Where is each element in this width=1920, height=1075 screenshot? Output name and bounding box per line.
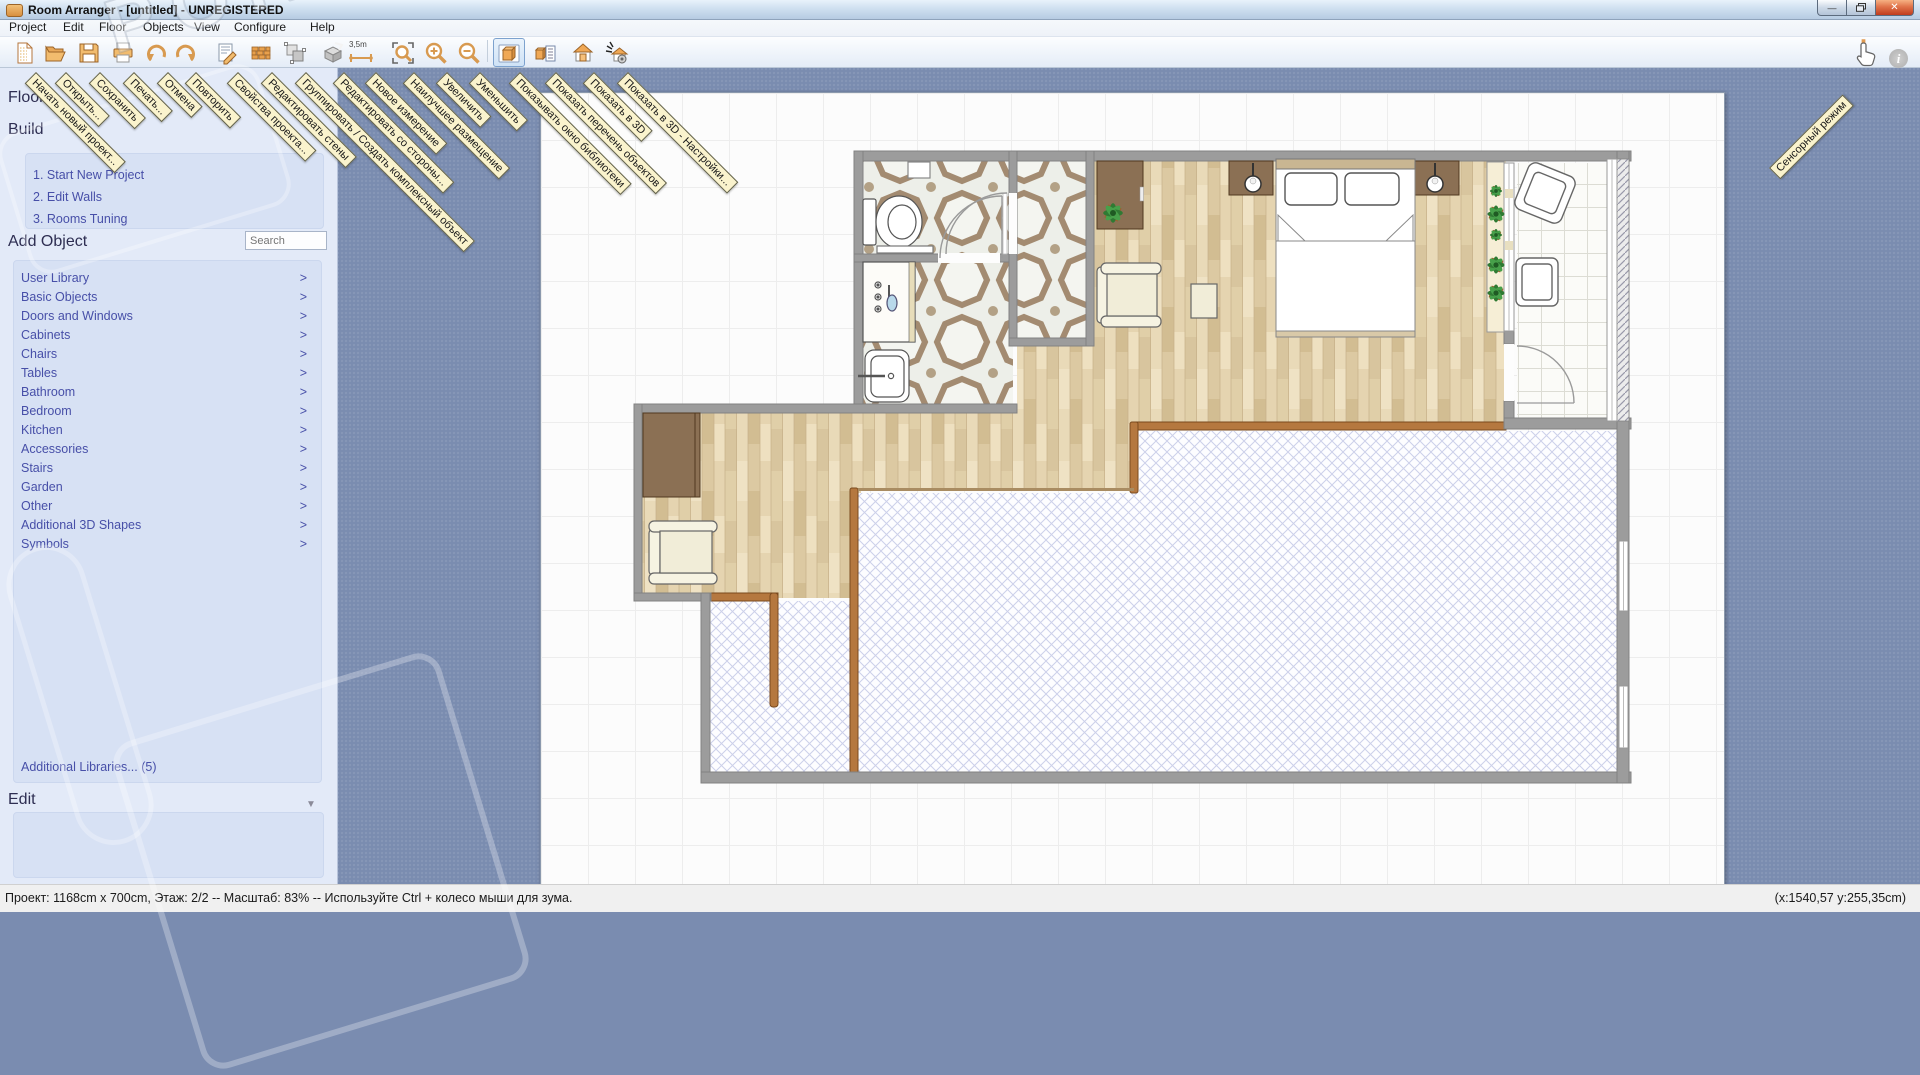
- edit-header: Edit: [8, 791, 36, 809]
- plant[interactable]: [1490, 185, 1502, 197]
- category-chairs[interactable]: Chairs>: [14, 345, 321, 364]
- zoom-in-button[interactable]: [420, 38, 452, 67]
- floorplan-canvas[interactable]: [540, 92, 1725, 885]
- cube-arrow-icon: [321, 41, 345, 65]
- group-objects-icon: [283, 41, 307, 65]
- window[interactable]: [1619, 541, 1628, 611]
- side-table[interactable]: [1191, 284, 1217, 318]
- wall-wing-bottom[interactable]: [634, 593, 711, 601]
- new-document-icon: [13, 41, 37, 65]
- category-tables[interactable]: Tables>: [14, 364, 321, 383]
- menu-bar: Project Edit Floor Objects View Configur…: [0, 19, 1920, 37]
- properties-icon: [215, 41, 239, 65]
- status-bar: Проект: 1168cm x 700cm, Этаж: 2/2 -- Мас…: [0, 884, 1920, 912]
- zoom-out-icon: [457, 41, 481, 65]
- window-controls: — ✕: [1818, 0, 1914, 17]
- show-library-button[interactable]: [493, 38, 525, 67]
- menu-project[interactable]: Project: [6, 19, 49, 36]
- menu-help[interactable]: Help: [307, 19, 338, 36]
- category-stairs[interactable]: Stairs>: [14, 459, 321, 478]
- door-opening: [1009, 193, 1017, 254]
- settings-sparks-icon: [605, 41, 629, 65]
- balcony-chair[interactable]: [1516, 258, 1558, 306]
- category-basic-objects[interactable]: Basic Objects>: [14, 288, 321, 307]
- chevron-right-icon: >: [300, 516, 307, 535]
- close-icon: ✕: [1890, 2, 1898, 13]
- wing-cabinet[interactable]: [643, 413, 700, 497]
- chevron-right-icon: >: [300, 364, 307, 383]
- info-icon[interactable]: i: [1889, 49, 1908, 68]
- corridor-tile-floor: [1017, 159, 1091, 338]
- window[interactable]: [1619, 686, 1628, 748]
- undo-icon: [145, 41, 169, 65]
- category-user-library[interactable]: User Library>: [14, 269, 321, 288]
- wall-corridor-right[interactable]: [1086, 151, 1094, 346]
- wing-armchair[interactable]: [649, 521, 717, 584]
- wall-bottom[interactable]: [701, 772, 1631, 783]
- wall-brown-vertical-long[interactable]: [850, 488, 858, 778]
- plant[interactable]: [1488, 206, 1505, 223]
- wall-balcony-stub-top[interactable]: [1504, 331, 1514, 344]
- category-kitchen[interactable]: Kitchen>: [14, 421, 321, 440]
- door-opening: [938, 253, 1000, 263]
- edit-panel-box: [13, 812, 324, 878]
- wall-bigroom-left[interactable]: [701, 593, 710, 781]
- door-leaf: [1003, 193, 1007, 254]
- chevron-right-icon: >: [300, 326, 307, 345]
- door-opening: [1504, 344, 1514, 401]
- library-box-icon: [497, 41, 521, 65]
- bedroom-armchair[interactable]: [1097, 263, 1161, 327]
- touch-mode-button[interactable]: [1850, 38, 1882, 68]
- wall-balcony-stub-bottom[interactable]: [1504, 401, 1514, 418]
- collapse-triangle-icon[interactable]: ▼: [306, 799, 316, 810]
- chevron-right-icon: >: [300, 269, 307, 288]
- wall-right-insulation: [1617, 159, 1629, 421]
- edit-walls-button[interactable]: [245, 38, 277, 67]
- search-input[interactable]: [245, 231, 327, 250]
- toolbar-separator: [487, 40, 488, 62]
- wall-brown-vertical[interactable]: [1130, 422, 1138, 493]
- build-step-rooms-tuning[interactable]: 3. Rooms Tuning: [33, 208, 323, 230]
- menu-view[interactable]: View: [191, 19, 223, 36]
- chevron-right-icon: >: [300, 478, 307, 497]
- chevron-right-icon: >: [300, 535, 307, 554]
- show-object-list-button[interactable]: [529, 38, 561, 67]
- toolbar: 3,5m: [0, 36, 1920, 68]
- wall-brown-horizontal[interactable]: [1134, 422, 1506, 430]
- category-doors-and-windows[interactable]: Doors and Windows>: [14, 307, 321, 326]
- measure-label: 3,5m: [349, 40, 367, 49]
- category-garden[interactable]: Garden>: [14, 478, 321, 497]
- chevron-right-icon: >: [300, 440, 307, 459]
- plant[interactable]: [1490, 229, 1502, 241]
- restore-button[interactable]: [1846, 0, 1876, 16]
- save-button[interactable]: [73, 38, 105, 67]
- open-folder-icon: [43, 41, 67, 65]
- build-step-start-new-project[interactable]: 1. Start New Project: [33, 164, 323, 186]
- group-button[interactable]: [279, 38, 311, 67]
- app-icon: [6, 4, 23, 17]
- category-symbols[interactable]: Symbols>: [14, 535, 321, 554]
- wall-top[interactable]: [854, 151, 1631, 161]
- build-header: Build: [8, 121, 44, 139]
- chevron-right-icon: >: [300, 421, 307, 440]
- double-bed[interactable]: [1276, 159, 1415, 337]
- printer-icon: [111, 41, 135, 65]
- washbasin-cabinet[interactable]: [863, 262, 915, 342]
- new-project-button[interactable]: [9, 38, 41, 67]
- show-3d-settings-button[interactable]: [601, 38, 633, 67]
- menu-floor[interactable]: Floor: [96, 19, 129, 36]
- towel-rail[interactable]: [877, 246, 933, 253]
- chevron-right-icon: >: [300, 345, 307, 364]
- status-cursor-coordinates: (x:1540,57 y:255,35cm): [1775, 891, 1906, 905]
- touch-hand-icon: [1850, 38, 1882, 68]
- zoom-in-icon: [424, 41, 448, 65]
- close-button[interactable]: ✕: [1875, 0, 1914, 16]
- category-additional-3d-shapes[interactable]: Additional 3D Shapes>: [14, 516, 321, 535]
- new-measurement-button[interactable]: 3,5m: [345, 38, 377, 67]
- category-accessories[interactable]: Accessories>: [14, 440, 321, 459]
- sink[interactable]: [858, 350, 909, 402]
- chevron-right-icon: >: [300, 459, 307, 478]
- additional-libraries-link[interactable]: Additional Libraries... (5): [21, 760, 156, 774]
- chevron-right-icon: >: [300, 307, 307, 326]
- menu-edit[interactable]: Edit: [60, 19, 87, 36]
- category-cabinets[interactable]: Cabinets>: [14, 326, 321, 345]
- menu-objects[interactable]: Objects: [140, 19, 187, 36]
- print-button[interactable]: [107, 38, 139, 67]
- chevron-right-icon: >: [300, 288, 307, 307]
- wall-wing-left[interactable]: [634, 404, 642, 601]
- sidebar-panel: Floor Build 1. Start New Project 2. Edit…: [0, 67, 338, 884]
- minimize-button[interactable]: —: [1817, 0, 1847, 16]
- title-bar: Room Arranger - [untitled] - UNREGISTERE…: [0, 0, 1920, 20]
- category-other[interactable]: Other>: [14, 497, 321, 516]
- house-3d-icon: [571, 41, 595, 65]
- object-categories-box: User Library> Basic Objects> Doors and W…: [13, 260, 322, 783]
- wall-wing-top[interactable]: [634, 404, 1017, 413]
- redo-icon: [173, 41, 197, 65]
- category-bedroom[interactable]: Bedroom>: [14, 402, 321, 421]
- plant[interactable]: [1488, 257, 1505, 274]
- minimize-icon: —: [1828, 3, 1837, 13]
- best-fit-button[interactable]: [387, 38, 419, 67]
- add-object-header: Add Object: [8, 233, 87, 251]
- wall-brown-stub[interactable]: [770, 593, 778, 707]
- restore-icon: [1856, 3, 1866, 12]
- category-bathroom[interactable]: Bathroom>: [14, 383, 321, 402]
- window[interactable]: [1504, 163, 1514, 331]
- plant[interactable]: [1488, 285, 1505, 302]
- chevron-right-icon: >: [300, 383, 307, 402]
- build-step-edit-walls[interactable]: 2. Edit Walls: [33, 186, 323, 208]
- chevron-right-icon: >: [300, 402, 307, 421]
- wall-corridor-bottom[interactable]: [1009, 338, 1094, 346]
- zoom-out-button[interactable]: [453, 38, 485, 67]
- workspace: Floor Build 1. Start New Project 2. Edit…: [0, 67, 1920, 884]
- zoom-fit-icon: [391, 41, 415, 65]
- project-properties-button[interactable]: [211, 38, 243, 67]
- save-floppy-icon: [77, 41, 101, 65]
- wall-bath-left[interactable]: [854, 151, 863, 413]
- floor-edge-line: [858, 488, 1134, 491]
- open-button[interactable]: [39, 38, 71, 67]
- brick-wall-icon: [249, 41, 273, 65]
- show-3d-button[interactable]: [567, 38, 599, 67]
- floorplan-drawing: [541, 93, 1724, 884]
- redo-button[interactable]: [169, 38, 201, 67]
- object-list-icon: [533, 41, 557, 65]
- window[interactable]: [1607, 159, 1617, 421]
- plant[interactable]: [1103, 203, 1123, 223]
- window-title: Room Arranger - [untitled] - UNREGISTERE…: [28, 3, 284, 17]
- toilet-cistern[interactable]: [908, 162, 930, 178]
- build-steps-box: 1. Start New Project 2. Edit Walls 3. Ro…: [25, 153, 324, 229]
- status-project-info: Проект: 1168cm x 700cm, Этаж: 2/2 -- Мас…: [5, 891, 572, 905]
- chevron-right-icon: >: [300, 497, 307, 516]
- toilet[interactable]: [863, 196, 922, 248]
- wall-brown-horizontal-short[interactable]: [703, 593, 778, 601]
- menu-configure[interactable]: Configure: [231, 19, 289, 36]
